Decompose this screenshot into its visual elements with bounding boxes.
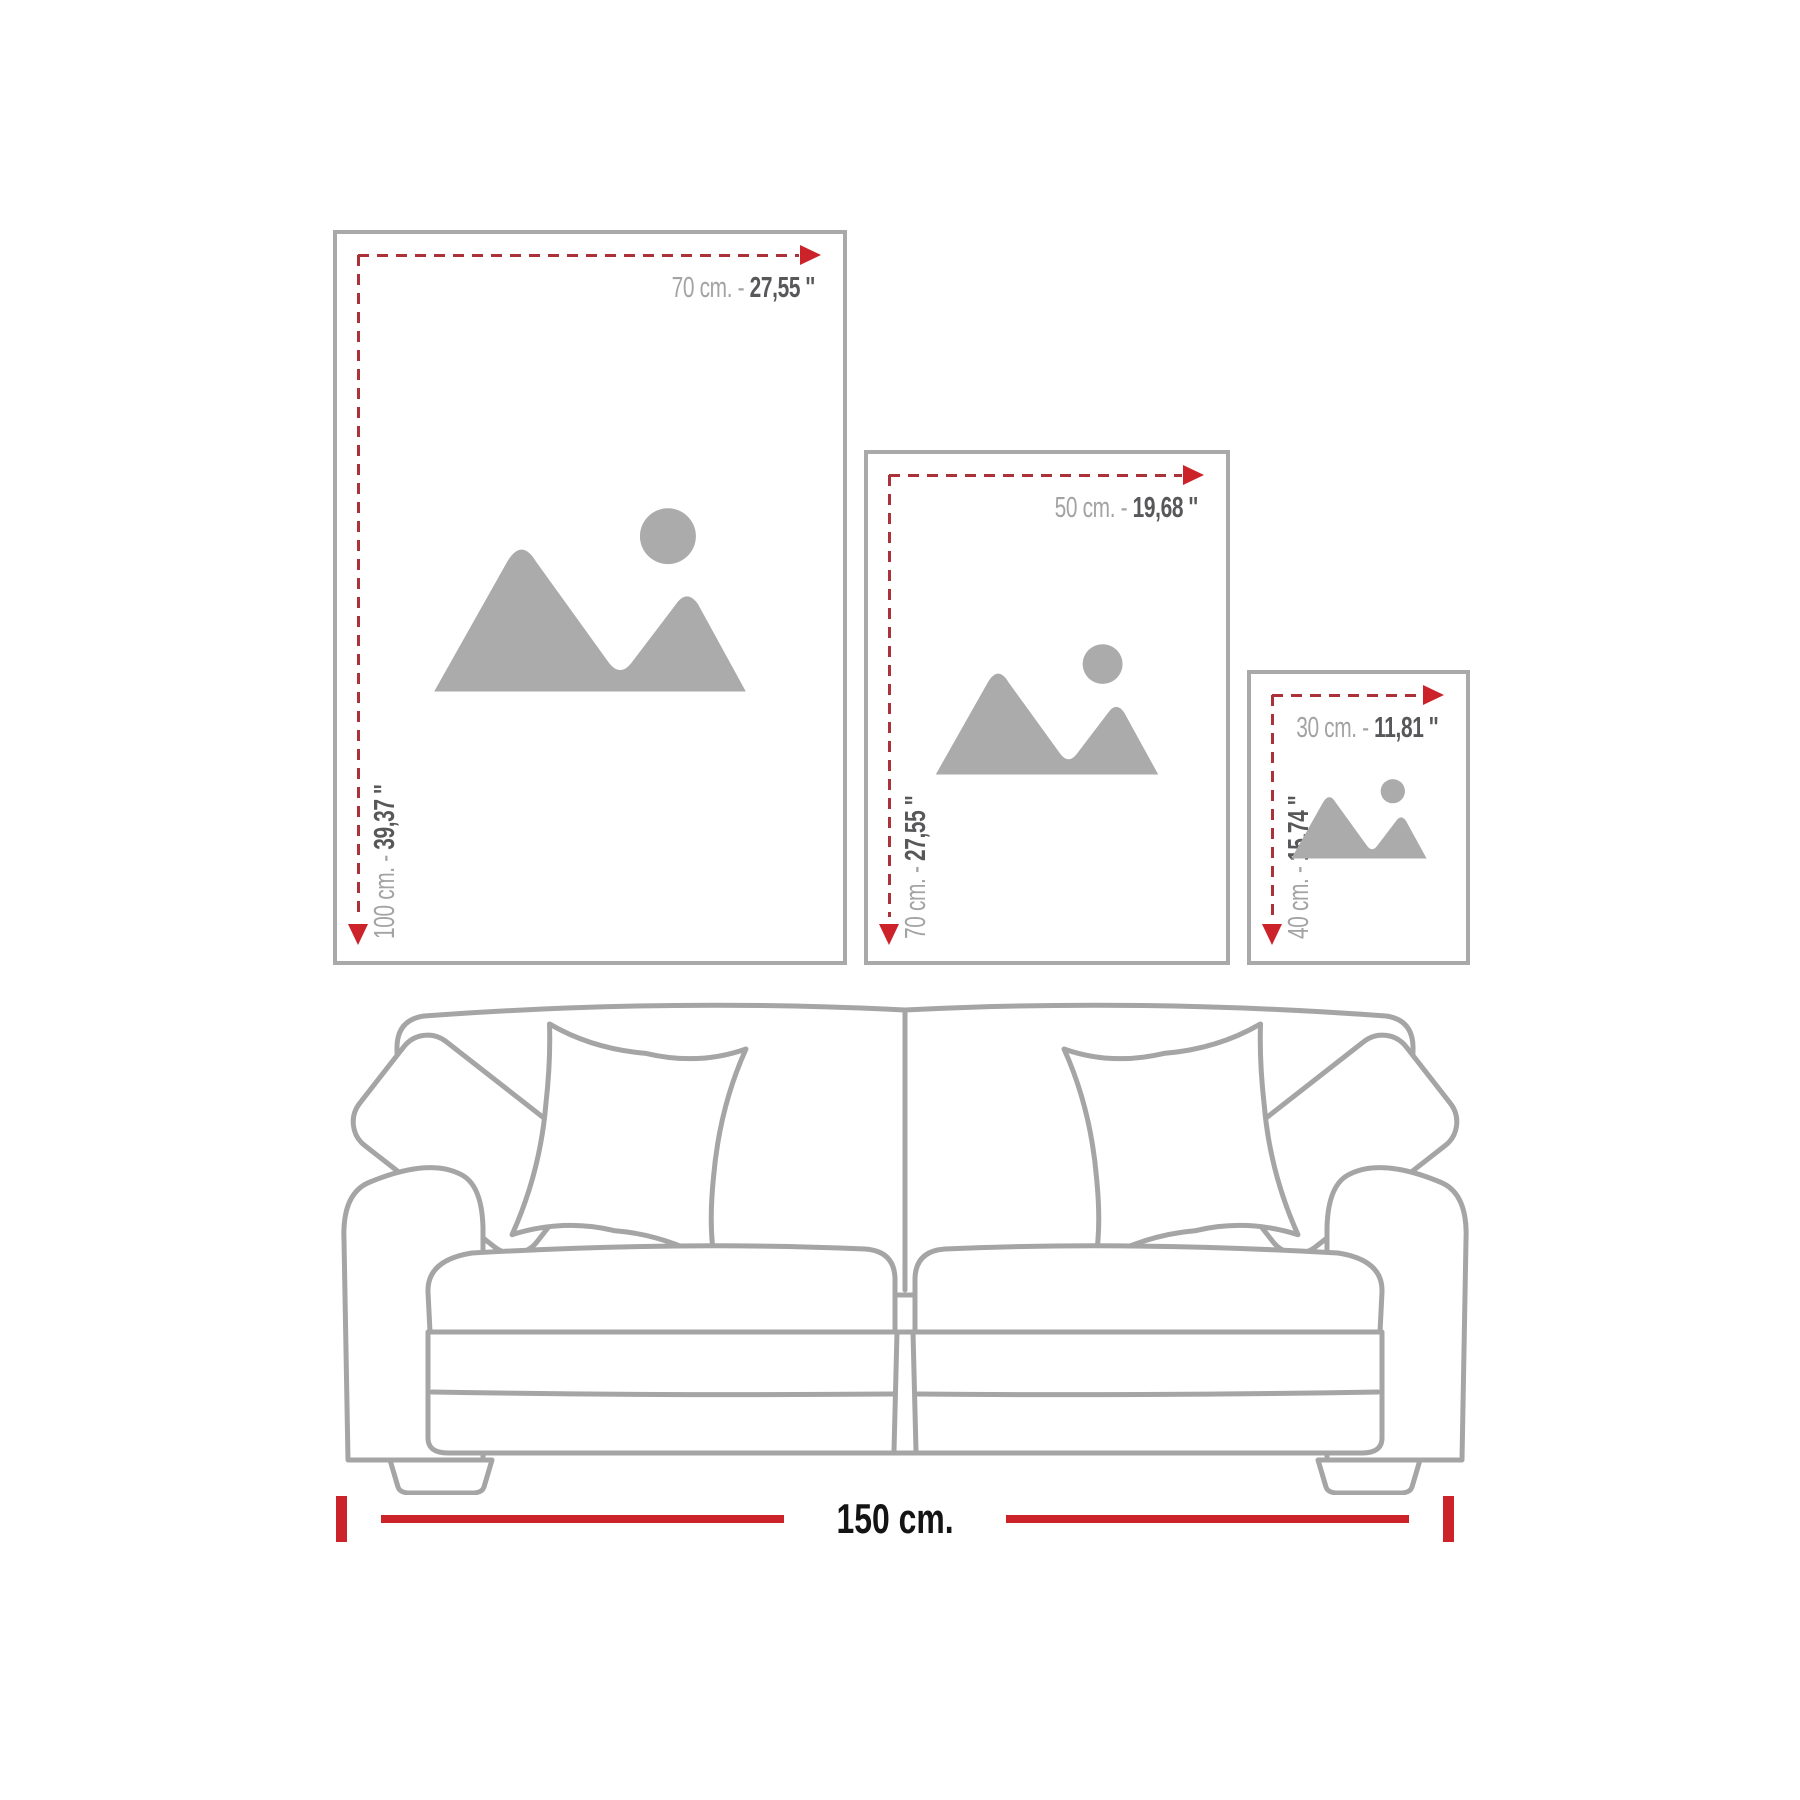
height-cm-value: 70 cm. - [900, 866, 932, 939]
width-cm-value: 30 cm. - [1296, 712, 1369, 744]
height-inch-value: 39,37 '' [369, 785, 401, 850]
poster-frame-large: 70 cm. - 27,55 '' 100 cm. - 39,37 '' [333, 230, 847, 965]
width-cm-value: 50 cm. - [1055, 492, 1128, 524]
height-dimension-line [357, 255, 360, 917]
height-inch-value: 27,55 '' [900, 796, 932, 861]
height-dimension-label: 100 cm. - 39,37 '' [367, 785, 403, 939]
height-cm-value: 40 cm. - [1283, 866, 1315, 939]
width-inch-value: 19,68 '' [1133, 492, 1198, 524]
height-dimension-line [1271, 695, 1274, 917]
measure-line-right [1006, 1515, 1409, 1523]
width-dimension-line [1272, 694, 1422, 697]
image-placeholder-icon [431, 504, 749, 691]
width-dimension-line [358, 254, 799, 257]
width-dimension-label: 30 cm. - 11,81 '' [1296, 710, 1438, 746]
right-arrow-icon [1423, 685, 1444, 705]
width-inch-value: 27,55 '' [750, 272, 815, 304]
right-arrow-icon [800, 245, 821, 265]
measure-end-cap-right [1443, 1496, 1454, 1542]
height-dimension-line [888, 475, 891, 917]
right-arrow-icon [1183, 465, 1204, 485]
width-cm-value: 70 cm. - [672, 272, 745, 304]
height-dimension-label: 70 cm. - 27,55 '' [898, 796, 934, 939]
down-arrow-icon [879, 924, 899, 945]
poster-frame-small: 30 cm. - 11,81 '' 40 cm. - 15,74 '' [1247, 670, 1470, 965]
height-cm-value: 100 cm. - [369, 855, 401, 939]
width-dimension-label: 70 cm. - 27,55 '' [672, 270, 815, 306]
sofa-width-label: 150 cm. [836, 1495, 953, 1543]
width-dimension-line [889, 474, 1182, 477]
image-placeholder-icon [1290, 777, 1428, 858]
size-guide-diagram: 70 cm. - 27,55 '' 100 cm. - 39,37 '' 50 … [0, 0, 1800, 1800]
down-arrow-icon [348, 924, 368, 945]
sofa-illustration [340, 990, 1470, 1495]
measure-end-cap-left [336, 1496, 347, 1542]
measure-line-left [381, 1515, 784, 1523]
poster-frame-medium: 50 cm. - 19,68 '' 70 cm. - 27,55 '' [864, 450, 1230, 965]
width-inch-value: 11,81 '' [1374, 712, 1438, 744]
sofa-width-measure: 150 cm. [336, 1496, 1454, 1542]
down-arrow-icon [1262, 924, 1282, 945]
width-dimension-label: 50 cm. - 19,68 '' [1055, 490, 1198, 526]
image-placeholder-icon [934, 641, 1161, 774]
